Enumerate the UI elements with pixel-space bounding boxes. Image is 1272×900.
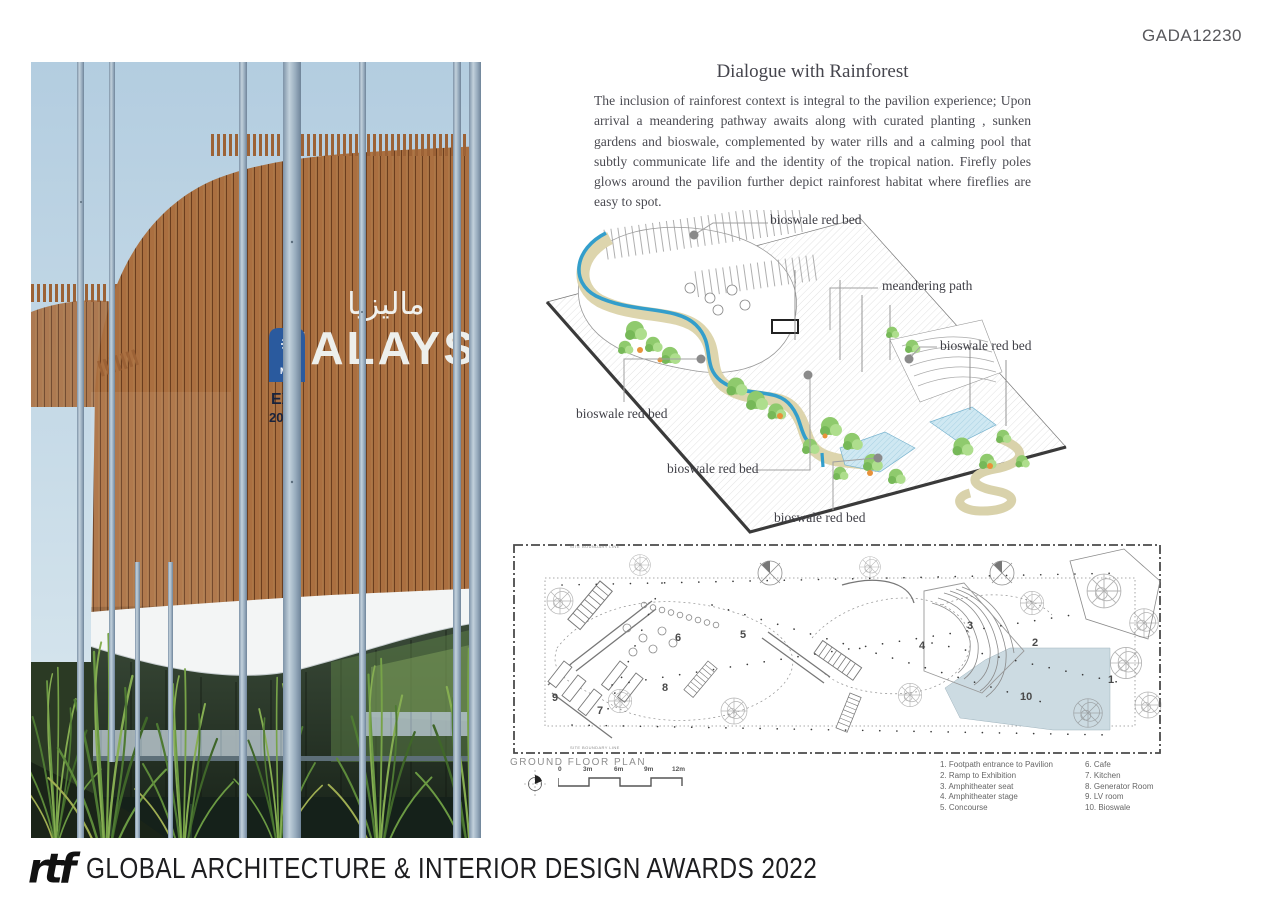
scale-bar: 0 3m 6m 9m 12m [556,766,696,790]
legend-item: 9. LV room [1085,792,1153,803]
award-board-page: GADA12230 [0,0,1272,900]
awards-title: GLOBAL ARCHITECTURE & INTERIOR DESIGN AW… [86,853,817,886]
plan-number-5: 5 [740,629,746,641]
rtf-logo: rtf [28,846,72,893]
plan-number-10: 10 [1020,691,1032,703]
legend-item: 8. Generator Room [1085,782,1153,793]
scale-tick-9m: 9m [644,766,653,773]
iso-label-meandering-path: meandering path [882,278,972,294]
plan-number-8: 8 [662,682,668,694]
legend-item: 6. Cafe [1085,760,1153,771]
article-title: Dialogue with Rainforest [594,61,1031,83]
signboard [772,320,798,333]
scale-tick-0: 0 [558,766,562,773]
iso-label-bioswale-4: bioswale red bed [667,461,758,477]
legend-item: 4. Amphitheater stage [940,792,1053,803]
plan-number-3: 3 [967,620,973,632]
isometric-diagram [540,210,1075,535]
plan-number-9: 9 [552,692,558,704]
footer: rtf GLOBAL ARCHITECTURE & INTERIOR DESIG… [28,846,957,892]
iso-label-bioswale-3: bioswale red bed [576,406,667,422]
scale-tick-6m: 6m [614,766,623,773]
scale-tick-12m: 12m [672,766,685,773]
ground-floor-plan: 1 2 3 4 5 6 7 8 9 10 SITE BOUNDARY LINE … [512,543,1162,755]
iso-label-bioswale-2: bioswale red bed [940,338,1031,354]
isometric-art [540,210,1075,535]
site-boundary-label-bottom: SITE BOUNDARY LINE [570,745,620,750]
plan-number-7: 7 [597,705,603,717]
pavilion-photo: ماليزيا MALAYSIA MA EX 202 [31,62,481,838]
plan-number-6: 6 [675,632,681,644]
pavilion-photo-art: ماليزيا MALAYSIA MA EX 202 [31,62,481,838]
plan-number-2: 2 [1032,637,1038,649]
iso-label-bioswale-5: bioswale red bed [774,510,865,526]
plan-bioswale-area [945,648,1110,730]
north-arrow [522,768,548,805]
legend-item: 5. Concourse [940,803,1053,814]
legend-item: 3. Amphitheater seat [940,782,1053,793]
legend-item: 1. Footpath entrance to Pavilion [940,760,1053,771]
iso-label-bioswale-1: bioswale red bed [770,212,861,228]
arabic-sign-text: ماليزيا [347,287,424,322]
article-body: The inclusion of rainforest context is i… [594,91,1031,213]
scale-tick-3m: 3m [583,766,592,773]
plan-number-1: 1 [1108,674,1114,686]
legend-item: 10. Bioswale [1085,803,1153,814]
site-boundary-label-top: SITE BOUNDARY LINE [570,544,620,549]
legend-item: 2. Ramp to Exhibition [940,771,1053,782]
plan-art [512,543,1162,755]
plan-number-4: 4 [919,640,925,652]
submission-code: GADA12230 [1142,26,1242,46]
legend-item: 7. Kitchen [1085,771,1153,782]
